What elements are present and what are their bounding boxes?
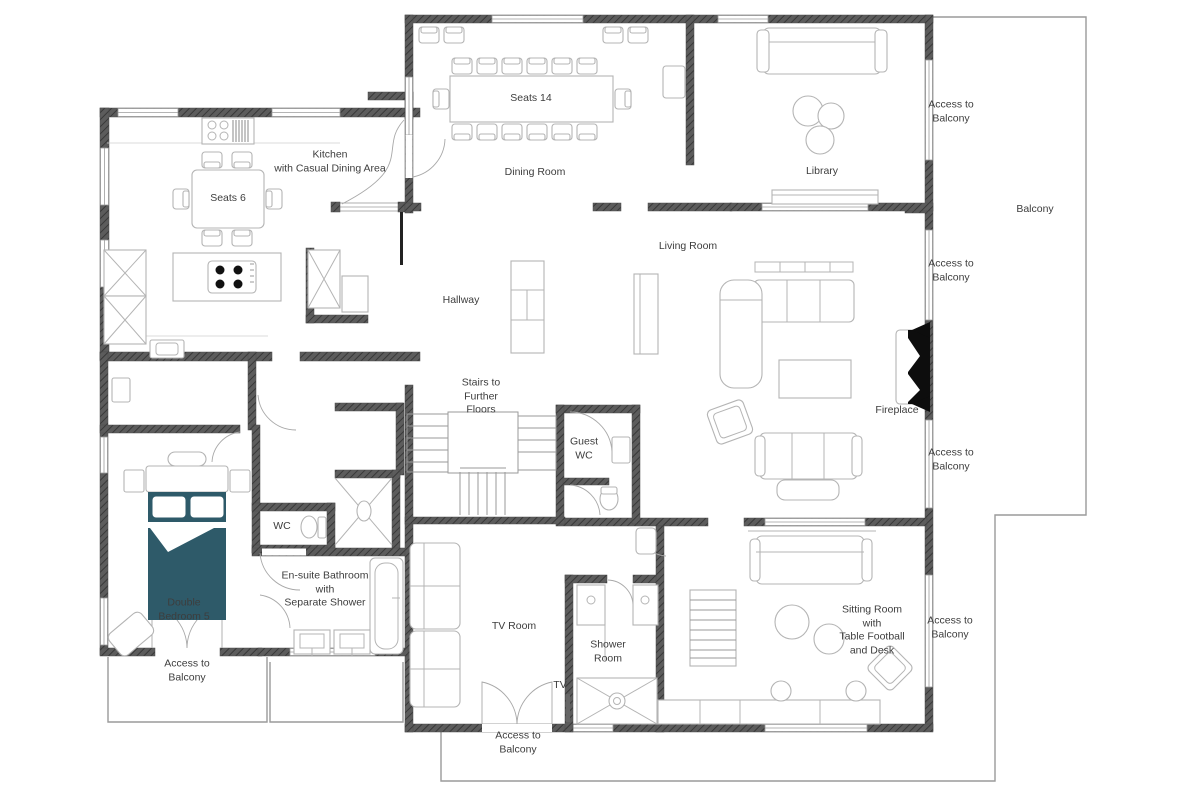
kitchen-label: Kitchen with Casual Dining Area xyxy=(274,148,385,175)
access-balcony-label-2: Access to Balcony xyxy=(928,257,974,284)
shower-cubicle-icon xyxy=(335,478,392,545)
armchair xyxy=(706,399,754,446)
living-sofa-2 xyxy=(755,433,862,500)
tv-icon xyxy=(566,694,570,722)
access-balcony-label-4: Access to Balcony xyxy=(164,657,210,684)
corner-chair xyxy=(444,27,464,43)
desk xyxy=(658,681,880,724)
kitchen-island xyxy=(173,253,281,301)
library-bench xyxy=(772,190,878,204)
stairs-label: Stairs to Further Floors xyxy=(462,377,501,418)
hallway-label: Hallway xyxy=(443,294,480,308)
bathtub-icon xyxy=(370,558,403,654)
bedroom-label: Double Bedroom 5 xyxy=(158,596,209,623)
tv-room-label: TV Room xyxy=(492,620,536,634)
guest-wc-sink-icon xyxy=(612,437,630,463)
access-balcony-label-3: Access to Balcony xyxy=(928,446,974,473)
living-console xyxy=(755,262,853,272)
living-cabinet xyxy=(634,274,658,354)
corner-chair xyxy=(603,27,623,43)
ensuite-label: En-suite Bathroom with Separate Shower xyxy=(282,570,369,611)
fireplace-icon xyxy=(896,322,930,412)
bed-double xyxy=(124,452,250,620)
sitting-table xyxy=(775,605,809,639)
dining-table-label: Seats 14 xyxy=(510,92,551,106)
wc-toilet-icon xyxy=(301,516,326,538)
library-tables xyxy=(793,96,844,154)
stove-icon xyxy=(202,118,254,144)
corner-chair xyxy=(419,27,439,43)
dining-cabinet xyxy=(663,66,685,98)
library-sofa xyxy=(757,28,887,74)
kitchen-table-label: Seats 6 xyxy=(210,192,246,206)
tv-label: TV xyxy=(553,679,566,693)
shower-tray-icon xyxy=(577,678,657,724)
fireplace-label: Fireplace xyxy=(875,404,918,418)
shower-room-label: Shower Room xyxy=(590,638,626,665)
wc-label: WC xyxy=(273,520,291,534)
tv-room-sofas xyxy=(410,543,460,707)
access-balcony-label-6: Access to Balcony xyxy=(495,729,541,756)
stairs-icon xyxy=(407,412,556,515)
access-balcony-label-1: Access to Balcony xyxy=(928,98,974,125)
coffee-table xyxy=(779,360,851,398)
balcony-label: Balcony xyxy=(1016,203,1053,217)
hall-sink-icon xyxy=(112,378,130,402)
living-room-label: Living Room xyxy=(659,240,717,254)
table-football-icon xyxy=(690,590,736,666)
dining-room-label: Dining Room xyxy=(505,166,566,180)
guest-wc-label: Guest WC xyxy=(570,435,598,462)
hallway-cabinet xyxy=(511,261,544,353)
library-label: Library xyxy=(806,165,838,179)
sitting-room-label: Sitting Room with Table Football and Des… xyxy=(839,604,904,659)
guest-wc-toilet-icon xyxy=(600,487,618,510)
access-balcony-label-5: Access to Balcony xyxy=(927,614,973,641)
lobby-sink-icon xyxy=(636,528,656,554)
floor-plan: Kitchen with Casual Dining Area Seats 6 … xyxy=(0,0,1200,800)
kitchen-sink-icon xyxy=(150,340,184,358)
sitting-sofa xyxy=(750,536,872,584)
corner-chair xyxy=(628,27,648,43)
